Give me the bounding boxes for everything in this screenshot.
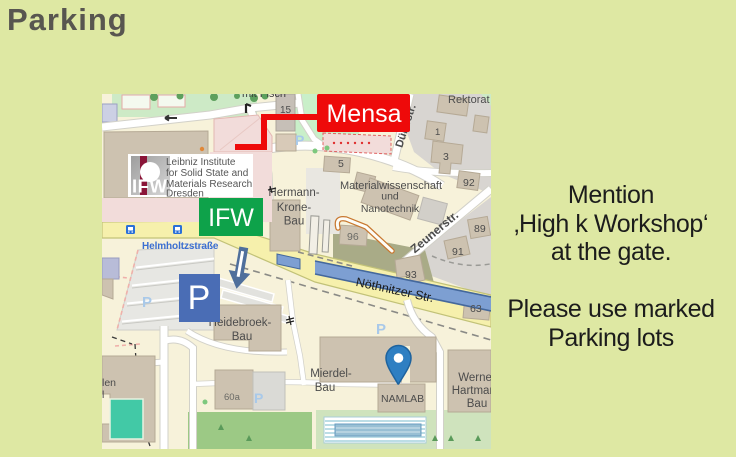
svg-text:Mensa: Mensa <box>326 100 401 128</box>
svg-text:Nanotechnik: Nanotechnik <box>361 203 420 215</box>
svg-text:1: 1 <box>435 127 440 138</box>
svg-text:60a: 60a <box>224 392 241 403</box>
svg-text:63: 63 <box>470 303 482 315</box>
svg-text:Bau: Bau <box>232 331 252 343</box>
svg-text:NAMLAB: NAMLAB <box>381 393 424 405</box>
svg-text:89: 89 <box>474 223 486 235</box>
svg-text:Dresden: Dresden <box>166 189 204 200</box>
svg-text:l: l <box>102 389 104 401</box>
svg-text:Mierdel-: Mierdel- <box>310 368 352 380</box>
svg-text:Bau: Bau <box>315 382 335 394</box>
svg-text:96: 96 <box>347 231 359 243</box>
svg-text:P: P <box>295 132 304 148</box>
svg-text:Krone-: Krone- <box>277 202 312 214</box>
svg-text:P: P <box>142 294 152 311</box>
svg-text:Hartmann: Hartmann <box>452 385 491 397</box>
svg-text:for Solid State and: for Solid State and <box>166 168 248 179</box>
svg-text:3: 3 <box>443 151 449 163</box>
svg-text:mit Fisch: mit Fisch <box>242 94 286 100</box>
svg-text:Werner: Werner <box>458 372 491 384</box>
svg-text:Bau: Bau <box>467 398 487 410</box>
svg-text:Rektorat: Rektorat <box>448 94 490 106</box>
svg-text:Leibniz Institute: Leibniz Institute <box>166 157 236 168</box>
svg-text:91: 91 <box>452 246 464 258</box>
svg-text:Bau: Bau <box>284 216 304 228</box>
svg-text:P: P <box>376 321 386 338</box>
svg-text:92: 92 <box>463 177 475 189</box>
svg-text:und: und <box>381 191 399 203</box>
svg-text:5: 5 <box>338 158 344 170</box>
svg-text:Hermann-: Hermann- <box>268 187 319 199</box>
svg-text:len: len <box>102 377 116 389</box>
svg-text:Helmholtzstraße: Helmholtzstraße <box>142 241 219 252</box>
svg-text:P: P <box>254 390 263 406</box>
svg-text:93: 93 <box>405 269 417 281</box>
svg-text:IFW: IFW <box>132 176 167 197</box>
svg-text:IFW: IFW <box>208 204 254 232</box>
svg-text:P: P <box>188 279 211 317</box>
